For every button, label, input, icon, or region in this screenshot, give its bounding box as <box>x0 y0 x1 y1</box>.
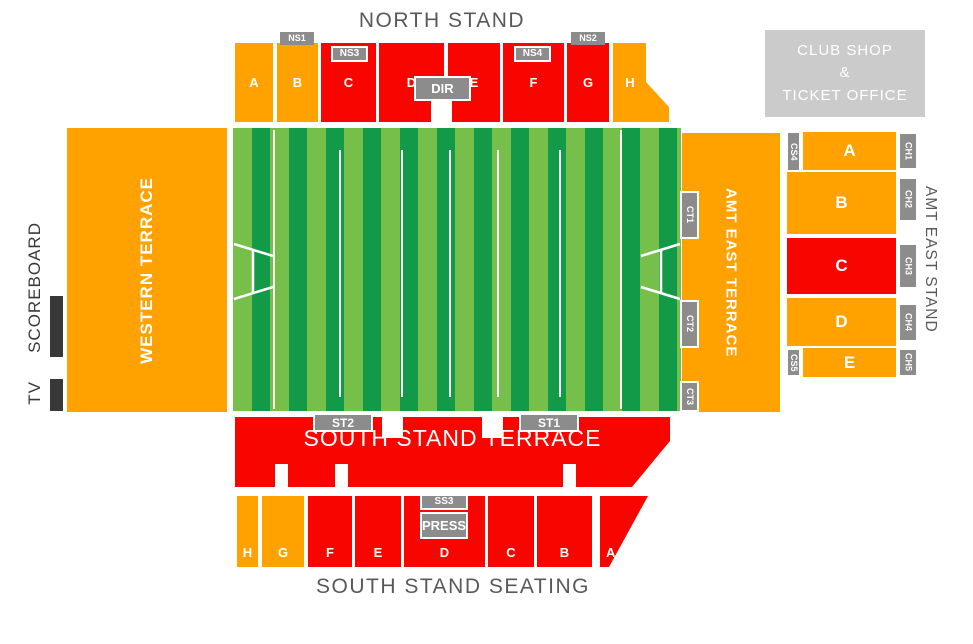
section-south-g[interactable]: G <box>262 496 304 567</box>
gate-ch4: CH4 <box>898 303 918 342</box>
gate-ch1: CH1 <box>898 132 918 170</box>
gate-ch5: CH5 <box>898 348 918 377</box>
press-box: PRESS <box>420 512 468 539</box>
gate-ch2: CH2 <box>898 177 918 222</box>
scoreboard-block <box>50 296 63 357</box>
section-east-b[interactable]: B <box>787 172 896 234</box>
section-north-a[interactable]: A <box>235 43 273 122</box>
section-east-a[interactable]: A <box>803 132 896 170</box>
section-south-e[interactable]: E <box>355 496 401 567</box>
gate-ns1: NS1 <box>280 32 314 45</box>
club-shop-line2: & <box>839 62 850 85</box>
section-north-h[interactable]: H <box>613 43 669 122</box>
director-box: DIR <box>414 76 471 101</box>
gate-ns2: NS2 <box>571 32 605 45</box>
gate-st2: ST2 <box>313 413 373 432</box>
section-north-b[interactable]: B <box>277 43 318 122</box>
club-shop-ticket-office: CLUB SHOP & TICKET OFFICE <box>765 30 925 117</box>
gate-ch3: CH3 <box>898 243 918 289</box>
terrace-vomitory-5 <box>563 464 576 487</box>
gate-ns3: NS3 <box>331 46 368 62</box>
gate-ns4: NS4 <box>514 46 551 62</box>
section-south-a[interactable]: A <box>600 496 648 567</box>
gate-st1: ST1 <box>519 413 579 432</box>
gate-ss3: SS3 <box>420 494 468 510</box>
gate-ct3: CT3 <box>680 381 699 412</box>
north-stand-tunnel <box>431 99 452 122</box>
section-north-g[interactable]: G <box>567 43 609 122</box>
tv-label-wrap: TV <box>21 373 49 413</box>
section-south-h[interactable]: H <box>237 496 258 567</box>
stadium-map: NORTH STAND A B C D E F G H NS1 NS2 NS3 … <box>0 0 973 644</box>
section-south-stand-terrace[interactable]: SOUTH STAND TERRACE <box>235 417 670 487</box>
goal-posts <box>233 128 681 411</box>
western-terrace-label: WESTERN TERRACE <box>137 177 157 364</box>
terrace-vomitory-1 <box>382 417 403 438</box>
south-stand-terrace-label: SOUTH STAND TERRACE <box>303 425 601 487</box>
gate-cs4: CS4 <box>786 131 801 172</box>
amt-east-terrace-label: AMT EAST TERRACE <box>723 188 740 357</box>
terrace-vomitory-3 <box>275 464 288 487</box>
section-south-f[interactable]: F <box>308 496 352 567</box>
scoreboard-label: SCOREBOARD <box>25 222 45 353</box>
tv-block <box>50 379 63 411</box>
section-south-c[interactable]: C <box>488 496 534 567</box>
amt-east-stand-title: AMT EAST STAND <box>921 186 939 333</box>
club-shop-line1: CLUB SHOP <box>797 40 893 63</box>
gate-ct2: CT2 <box>680 300 699 348</box>
section-amt-east-terrace[interactable]: AMT EAST TERRACE <box>682 133 780 412</box>
section-east-e[interactable]: E <box>803 348 896 377</box>
scoreboard-label-wrap: SCOREBOARD <box>21 213 49 361</box>
north-stand-title: NORTH STAND <box>242 9 642 33</box>
section-east-c[interactable]: C <box>787 238 896 294</box>
gate-ct1: CT1 <box>680 191 699 239</box>
terrace-vomitory-2 <box>482 417 503 438</box>
terrace-vomitory-4 <box>335 464 348 487</box>
south-stand-seating-title: SOUTH STAND SEATING <box>253 575 653 599</box>
section-western-terrace[interactable]: WESTERN TERRACE <box>67 128 227 412</box>
club-shop-line3: TICKET OFFICE <box>782 85 907 108</box>
section-east-d[interactable]: D <box>787 298 896 346</box>
amt-east-stand-title-wrap: AMT EAST STAND <box>919 170 941 348</box>
section-south-b[interactable]: B <box>537 496 592 567</box>
pitch <box>233 128 681 411</box>
gate-cs5: CS5 <box>786 348 801 377</box>
tv-label: TV <box>25 381 45 405</box>
